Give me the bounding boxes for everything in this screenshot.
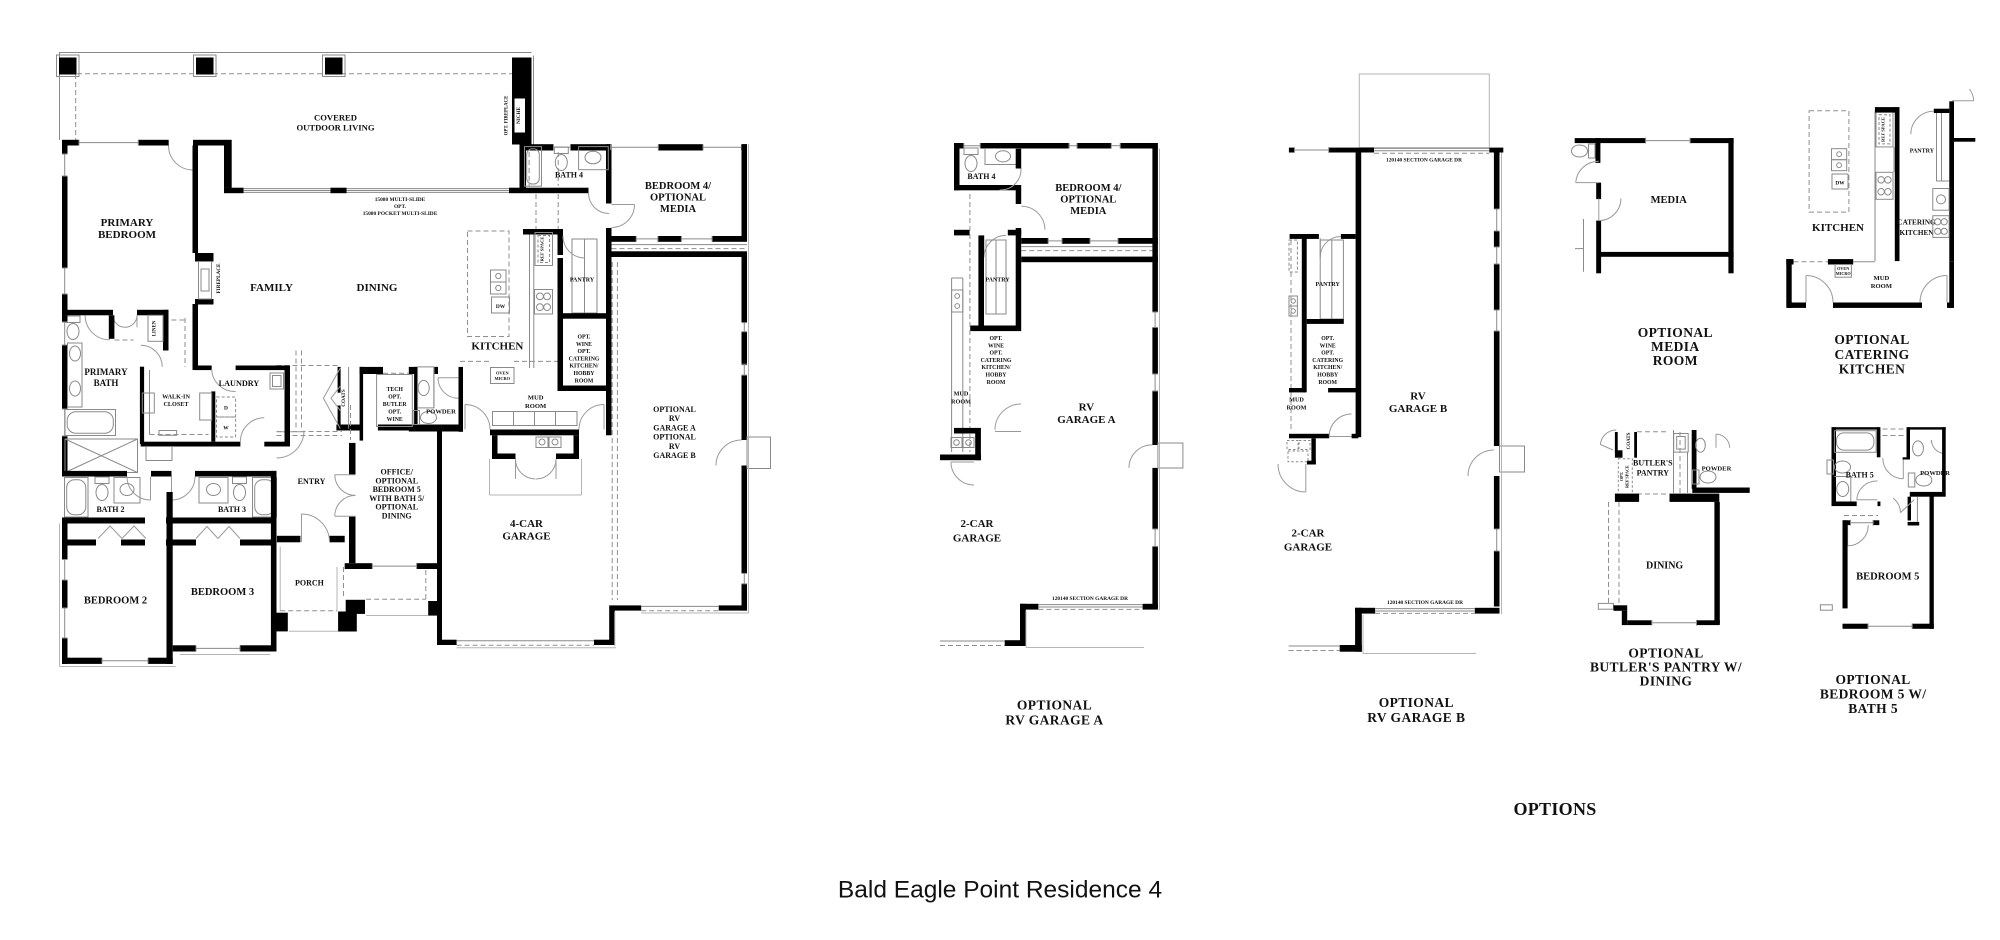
svg-text:LINEN: LINEN [153, 320, 158, 336]
svg-text:Bald Eagle Point Residence 4: Bald Eagle Point Residence 4 [838, 877, 1162, 904]
svg-text:BATH 4: BATH 4 [967, 172, 995, 181]
svg-text:BATH 3: BATH 3 [218, 505, 246, 514]
svg-text:KITCHEN: KITCHEN [1812, 222, 1864, 234]
svg-text:KITCHEN: KITCHEN [471, 341, 523, 353]
svg-text:FIREPLACE: FIREPLACE [216, 263, 222, 294]
svg-text:FAMILY: FAMILY [250, 282, 293, 294]
svg-text:POWDER: POWDER [426, 409, 456, 416]
svg-text:BATH 4: BATH 4 [555, 171, 583, 180]
svg-text:BUTLER'SPANTRY: BUTLER'SPANTRY [1633, 458, 1673, 477]
svg-text:DINING: DINING [357, 282, 398, 294]
svg-text:BEDROOM 5: BEDROOM 5 [1856, 572, 1919, 583]
svg-text:DW: DW [1835, 181, 1845, 187]
svg-text:W: W [223, 426, 229, 432]
svg-text:LAUNDRY: LAUNDRY [219, 379, 260, 388]
svg-text:OPT. FIREPLACE: OPT. FIREPLACE [505, 96, 510, 136]
svg-text:PRIMARYBEDROOM: PRIMARYBEDROOM [98, 217, 157, 241]
svg-text:120140 SECTION GARAGE DR: 120140 SECTION GARAGE DR [1386, 158, 1462, 164]
svg-text:OVENMICRO: OVENMICRO [1836, 266, 1852, 276]
svg-text:BATH 5: BATH 5 [1846, 471, 1874, 480]
svg-text:COATS: COATS [341, 389, 347, 407]
svg-text:PANTRY: PANTRY [1316, 282, 1341, 288]
svg-text:OPTIONALRV GARAGE A: OPTIONALRV GARAGE A [1005, 698, 1103, 728]
svg-text:OPTIONS: OPTIONS [1513, 799, 1596, 819]
svg-text:ENTRY: ENTRY [298, 477, 326, 486]
svg-text:REF SPACE: REF SPACE [1625, 465, 1630, 488]
svg-text:PANTRY: PANTRY [570, 278, 595, 284]
svg-text:OVENMICRO: OVENMICRO [494, 371, 510, 381]
svg-text:OPT.: OPT. [1619, 472, 1624, 481]
svg-text:MUDROOM: MUDROOM [951, 391, 971, 406]
svg-text:120140 SECTION GARAGE DR: 120140 SECTION GARAGE DR [1387, 600, 1463, 606]
svg-text:MUDROOM: MUDROOM [1287, 397, 1307, 412]
svg-text:120140 SECTION GARAGE DR: 120140 SECTION GARAGE DR [1052, 596, 1128, 602]
svg-text:DW: DW [496, 304, 506, 310]
svg-text:REF SPACE: REF SPACE [540, 237, 545, 262]
svg-text:D: D [224, 406, 228, 412]
svg-text:WALK-INCLOSET: WALK-INCLOSET [162, 394, 190, 409]
svg-text:NICHE: NICHE [516, 106, 522, 124]
svg-text:OPTIONALCATERINGKITCHEN: OPTIONALCATERINGKITCHEN [1834, 332, 1909, 377]
svg-text:PORCH: PORCH [295, 579, 325, 588]
svg-text:OPTIONALRVGARAGE AOPTIONALRVGA: OPTIONALRVGARAGE AOPTIONALRVGARAGE B [653, 405, 696, 460]
svg-text:PANTRY: PANTRY [985, 278, 1010, 284]
svg-text:COATS: COATS [1627, 432, 1632, 449]
svg-text:BEDROOM 3: BEDROOM 3 [191, 587, 254, 598]
svg-text:BEDROOM 2: BEDROOM 2 [84, 596, 147, 607]
svg-text:DINING: DINING [1646, 561, 1683, 572]
svg-text:BATH 2: BATH 2 [96, 505, 124, 514]
svg-text:REF SPACE: REF SPACE [1881, 117, 1886, 142]
svg-text:PANTRY: PANTRY [1910, 149, 1935, 155]
svg-text:MEDIA: MEDIA [1651, 195, 1688, 206]
svg-text:OPTIONALRV GARAGE B: OPTIONALRV GARAGE B [1367, 695, 1465, 725]
